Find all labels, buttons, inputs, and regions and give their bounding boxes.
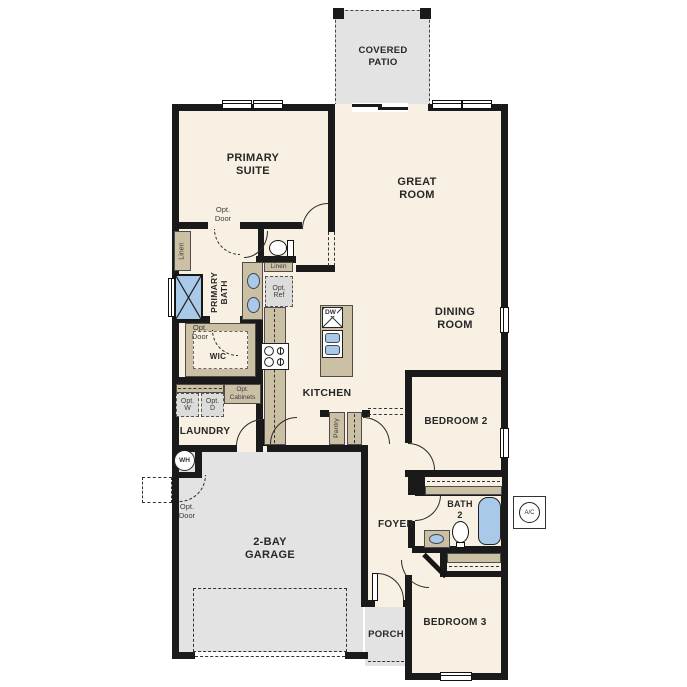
laundry-label: LAUNDRY [165, 426, 245, 438]
porch-label: PORCH [356, 629, 416, 641]
optional-dryer: Opt. D [201, 393, 224, 417]
bedroom3-label: BEDROOM 3 [405, 617, 505, 629]
wall [405, 370, 508, 377]
cooktop [261, 343, 289, 370]
vanity-sink [247, 297, 260, 313]
toilet-bowl [269, 240, 287, 256]
kitchen-label: KITCHEN [287, 387, 367, 400]
counter-dash [274, 309, 275, 443]
toilet-bowl [452, 521, 469, 543]
cooktop-burners-icon [262, 344, 288, 369]
floor-plan: Linen PRIMARYBATH Linen Opt. Ref Opt.Doo… [0, 0, 687, 687]
dishwasher-label: DW [324, 309, 337, 316]
closet-dash [354, 414, 355, 443]
garage-label: 2-BAYGARAGE [230, 536, 310, 563]
opt-door-garage-label: Opt.Door [167, 503, 207, 521]
wall [361, 600, 375, 607]
window [440, 672, 472, 681]
bedroom3-closet [447, 553, 501, 563]
ac-unit: A/C [519, 502, 540, 523]
sink-basin [325, 333, 340, 343]
wall [328, 104, 335, 232]
linen-shelf: Linen [264, 262, 293, 272]
toilet-base [456, 542, 465, 548]
opt-door-suite-label: Opt.Door [203, 206, 243, 224]
wall [408, 477, 425, 495]
sink-basin [325, 345, 340, 355]
wall [320, 410, 329, 417]
wall-garage-bottom [172, 652, 195, 659]
bath2-label: BATH2 [440, 499, 480, 521]
wall-garage-bottom [345, 652, 368, 659]
covered-patio-label: COVEREDPATIO [343, 45, 423, 68]
toilet-tank [287, 240, 294, 257]
window [462, 100, 492, 109]
garage-door-line [195, 656, 345, 657]
window [253, 100, 283, 109]
optional-door-stoop [142, 477, 172, 503]
closet-dash [427, 481, 500, 482]
water-heater: WH [174, 450, 195, 471]
primary-suite-label: PRIMARYSUITE [213, 152, 293, 179]
opt-cabinets-label: Opt.Cabinets [230, 386, 256, 401]
bathtub [478, 497, 501, 545]
sliding-door-panel [378, 107, 408, 110]
opening-dash [368, 408, 403, 409]
window [432, 100, 462, 109]
wall [440, 570, 503, 577]
dining-room-label: DININGROOM [415, 306, 495, 333]
garage-door-outline [193, 588, 347, 652]
wall [403, 600, 412, 607]
opening-dash [368, 414, 403, 415]
bedroom3-closet-shelf [447, 563, 501, 571]
bath2-sink [429, 534, 444, 544]
wic-label: WIC [198, 352, 238, 362]
linen-closet-label: Linen [178, 242, 186, 259]
opening-dash [334, 232, 335, 266]
wall [296, 265, 335, 272]
pantry-label: Pantry [333, 419, 341, 439]
wall [405, 470, 508, 477]
closet-dash [449, 566, 499, 567]
dishwasher: DW [322, 307, 343, 328]
primary-bath-label: PRIMARYBATH [191, 264, 247, 320]
wall [267, 445, 368, 452]
optional-refrigerator: Opt. Ref [265, 276, 293, 307]
porch-edge [368, 661, 404, 662]
great-room-label: GREATROOM [377, 176, 457, 203]
opening-dash [328, 232, 329, 266]
bedroom2-closet [425, 486, 502, 495]
window [500, 307, 509, 333]
opt-ref-label: Opt. [272, 285, 285, 292]
linen-shelf-label: Linen [271, 263, 287, 271]
shelf-dash [178, 388, 222, 389]
bedroom2-label: BEDROOM 2 [406, 416, 506, 428]
optional-cabinets: Opt.Cabinets [224, 384, 261, 404]
wall [240, 222, 302, 229]
wall [405, 377, 412, 443]
patio-post [420, 8, 431, 19]
pantry-cabinet: Pantry [329, 412, 345, 445]
patio-post [333, 8, 344, 19]
wall-right [501, 104, 508, 680]
optional-washer: Opt. W [176, 393, 199, 417]
wall [172, 377, 256, 384]
linen-closet: Linen [174, 231, 191, 271]
window [500, 428, 509, 458]
vanity-sink [247, 273, 260, 289]
window [222, 100, 252, 109]
